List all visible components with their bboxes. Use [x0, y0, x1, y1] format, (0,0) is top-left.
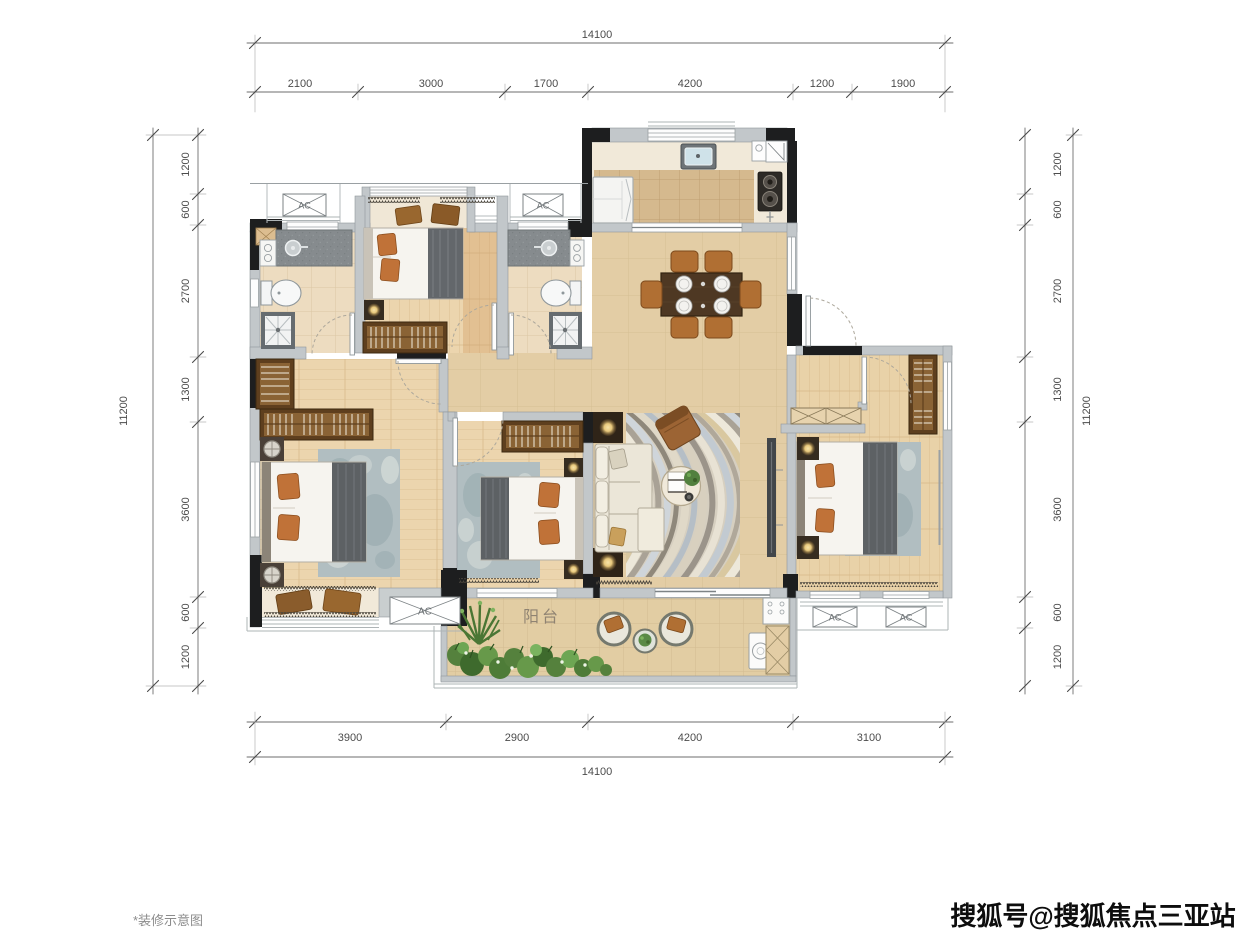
svg-text:AC: AC [829, 613, 842, 623]
svg-text:1200: 1200 [1052, 152, 1064, 176]
svg-text:3600: 3600 [1052, 497, 1064, 521]
svg-text:600: 600 [1052, 200, 1064, 218]
svg-text:2700: 2700 [180, 279, 192, 303]
svg-text:3600: 3600 [180, 497, 192, 521]
svg-text:11200: 11200 [118, 396, 130, 426]
svg-text:2700: 2700 [1052, 279, 1064, 303]
svg-text:1200: 1200 [810, 78, 834, 90]
svg-text:AC: AC [900, 613, 913, 623]
svg-text:1700: 1700 [534, 78, 558, 90]
svg-text:11200: 11200 [1081, 396, 1093, 426]
svg-text:600: 600 [1052, 603, 1064, 621]
svg-text:1200: 1200 [1052, 645, 1064, 669]
svg-text:14100: 14100 [582, 29, 613, 41]
svg-text:4200: 4200 [678, 732, 702, 744]
svg-text:3100: 3100 [857, 732, 881, 744]
svg-text:1200: 1200 [180, 152, 192, 176]
svg-text:AC: AC [298, 201, 311, 211]
svg-text:1200: 1200 [180, 645, 192, 669]
svg-text:1900: 1900 [891, 78, 915, 90]
svg-text:2900: 2900 [505, 732, 529, 744]
svg-text:1300: 1300 [1052, 377, 1064, 401]
svg-text:AC: AC [537, 201, 550, 211]
svg-text:*装修示意图: *装修示意图 [133, 913, 203, 928]
svg-text:阳台: 阳台 [523, 608, 561, 626]
svg-text:3000: 3000 [419, 78, 443, 90]
svg-text:14100: 14100 [582, 766, 613, 778]
svg-text:1300: 1300 [180, 377, 192, 401]
svg-text:600: 600 [180, 200, 192, 218]
svg-text:AC: AC [418, 607, 432, 618]
svg-text:600: 600 [180, 603, 192, 621]
svg-text:4200: 4200 [678, 78, 702, 90]
svg-text:3900: 3900 [338, 732, 362, 744]
svg-text:2100: 2100 [288, 78, 312, 90]
svg-text:搜狐号@搜狐焦点三亚站: 搜狐号@搜狐焦点三亚站 [950, 901, 1235, 931]
